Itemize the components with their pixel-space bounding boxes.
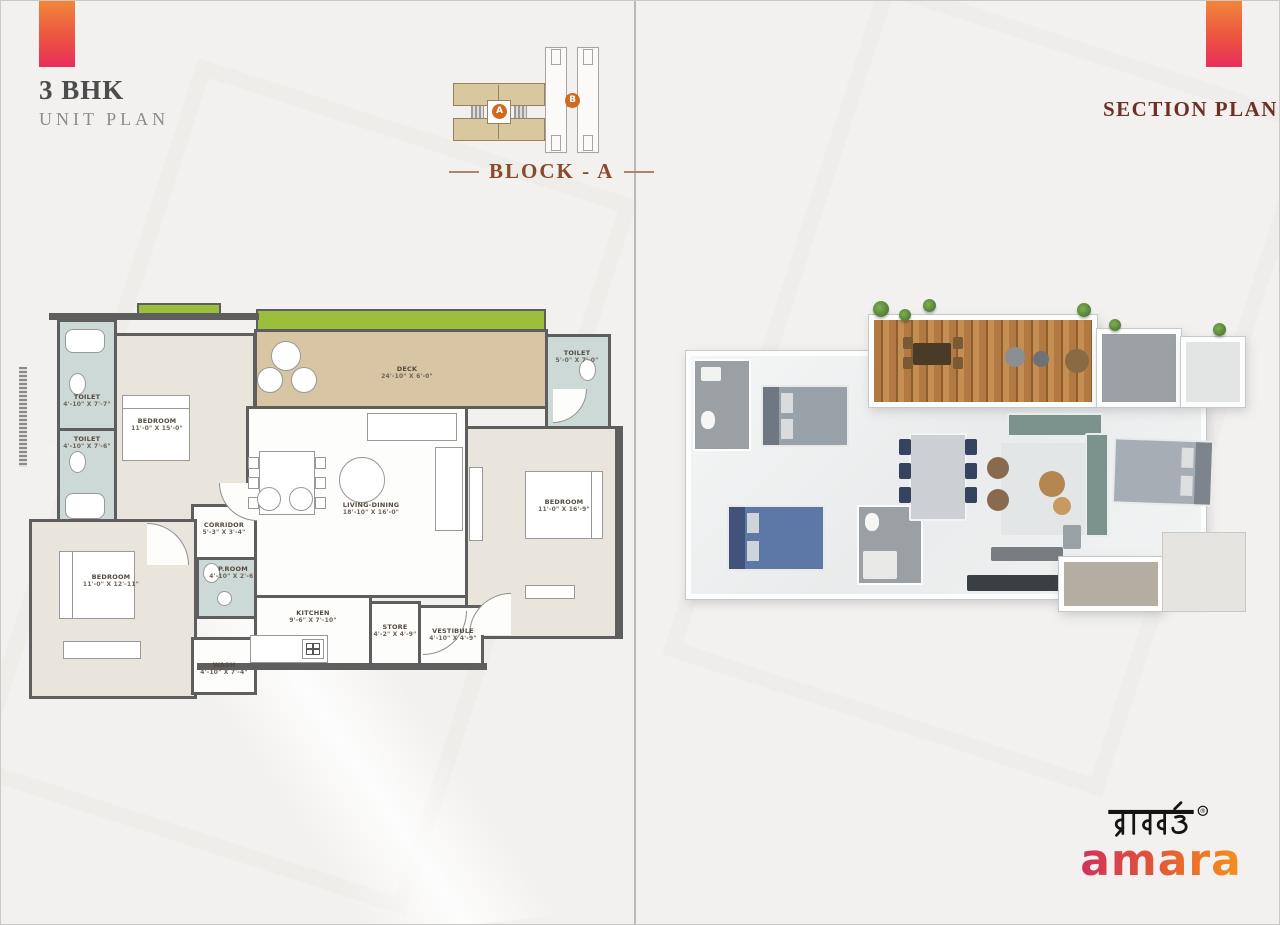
sofa xyxy=(367,413,457,441)
render-deck-chair xyxy=(953,357,963,369)
room-dim: 4'-10" X 7'-7" xyxy=(63,401,110,409)
plant-icon xyxy=(873,301,889,317)
bathtub-icon xyxy=(65,329,105,353)
room-name: DECK xyxy=(397,365,417,373)
render-wc xyxy=(865,513,879,531)
render-dining-chair xyxy=(899,439,911,455)
room-name: VESTIBULE xyxy=(432,627,474,635)
render-balcony-right xyxy=(1181,337,1245,407)
room-name: CORRIDOR xyxy=(204,521,244,529)
render-bed-blue xyxy=(727,505,825,571)
block-a-badge: A xyxy=(492,104,507,119)
lounge-chair xyxy=(339,457,385,503)
render-kitchen-island xyxy=(991,547,1063,561)
render-pillow xyxy=(781,393,793,413)
render-coffee-table xyxy=(1053,497,1071,515)
render-pillow xyxy=(1180,476,1193,496)
room-dim: 4'-2" X 4'-9" xyxy=(373,631,416,639)
render-coffee-table xyxy=(1039,471,1065,497)
room-name: P.ROOM xyxy=(218,565,248,573)
room-dim: 4'-10" X 4'-9" xyxy=(429,635,476,643)
section-plan-render xyxy=(661,293,1247,647)
room-label-toilet-1: TOILET 4'-10" X 7'-7" xyxy=(63,393,110,409)
room-label-deck: DECK 24'-10" X 6'-0" xyxy=(381,365,433,381)
accent-bar-left xyxy=(39,1,75,67)
render-headboard xyxy=(763,387,779,445)
accent-bar-right xyxy=(1206,1,1242,67)
render-headboard xyxy=(1194,442,1212,505)
room-dim: 4'-10" X 7'-4" xyxy=(200,669,247,677)
block-label-dash-right xyxy=(624,171,654,173)
room-label-kitchen: KITCHEN 9'-6" X 7'-10" xyxy=(289,609,336,625)
keyplan-block-b: B xyxy=(541,47,603,153)
room-name: BEDROOM xyxy=(138,417,177,425)
plant-icon xyxy=(899,309,911,321)
block-label: BLOCK - A xyxy=(489,159,614,184)
keyplan-block-a: A xyxy=(453,83,545,141)
block-b-badge: B xyxy=(565,93,580,108)
render-wicker-chair xyxy=(1065,349,1089,373)
plant-icon xyxy=(923,299,936,312)
bed-pillows xyxy=(122,395,190,409)
bench xyxy=(525,585,575,599)
render-deck-dining xyxy=(913,343,951,365)
brand-name: amara xyxy=(1061,839,1261,883)
block-label-row: BLOCK - A xyxy=(449,159,654,184)
panel-divider xyxy=(634,1,636,925)
wardrobe xyxy=(469,467,483,541)
room-dim: 24'-10" X 6'-0" xyxy=(381,373,433,381)
dining-chair xyxy=(315,497,326,509)
render-dining-table xyxy=(909,433,967,521)
render-pillow xyxy=(1181,448,1194,468)
hob-icon xyxy=(302,639,324,659)
dining-chair xyxy=(248,457,259,469)
unit-plan-subtitle: UNIT PLAN xyxy=(39,109,169,130)
kitchen-sink xyxy=(257,487,281,511)
devanagari-strokes xyxy=(1116,803,1186,836)
room-name: LIVING-DINING xyxy=(343,501,400,509)
basin-icon xyxy=(217,591,232,606)
room-label-living: LIVING-DINING 18'-10" X 16'-0" xyxy=(343,501,400,517)
room-name: BEDROOM xyxy=(92,573,131,581)
keyplan-a-core-hatch-left xyxy=(471,106,484,118)
room-name: WASH xyxy=(213,661,236,669)
sofa-single xyxy=(435,447,463,531)
room-dim: 11'-0" X 12'-11" xyxy=(83,581,139,589)
room-label-toilet-2: TOILET 4'-10" X 7'-6" xyxy=(63,435,110,451)
room-dim: 11'-0" X 15'-0" xyxy=(131,425,183,433)
render-pillow xyxy=(781,419,793,439)
render-fridge xyxy=(1063,525,1081,549)
block-label-dash-left xyxy=(449,171,479,173)
render-toilet-topright xyxy=(1097,329,1181,407)
render-bed-right xyxy=(1112,437,1214,506)
room-label-bedroom-1: BEDROOM 11'-0" X 15'-0" xyxy=(131,417,183,433)
wall-right xyxy=(615,426,623,639)
render-dining-chair xyxy=(899,463,911,479)
keyplan-b-room3 xyxy=(551,135,561,151)
room-dim: 4'-10" X 2'-6" xyxy=(209,573,256,581)
dining-chair xyxy=(248,477,259,489)
wall-top xyxy=(49,313,259,320)
render-dining-chair xyxy=(965,487,977,503)
render-pillow xyxy=(747,513,759,533)
room-label-bedroom-3: BEDROOM 11'-0" X 12'-11" xyxy=(83,573,139,589)
room-dim: 5'-3" X 3'-4" xyxy=(202,529,245,537)
render-sofa-side xyxy=(1085,433,1109,537)
bed-pillows xyxy=(591,471,603,539)
keyplan-a-core-hatch-right xyxy=(514,106,527,118)
wall-grille xyxy=(19,367,27,467)
dining-chair xyxy=(315,477,326,489)
toilet-wc-icon xyxy=(69,451,86,473)
room-dim: 18'-10" X 16'-0" xyxy=(343,509,400,517)
plant-icon xyxy=(1109,319,1121,331)
room-name: TOILET xyxy=(74,393,101,401)
render-dining-chair xyxy=(965,439,977,455)
toilet-wc-icon xyxy=(69,373,86,395)
room-dim: 5'-0" X 7'-0" xyxy=(555,357,598,365)
brand-devanagari: ® xyxy=(1095,799,1227,839)
plant-icon xyxy=(1213,323,1226,336)
bed-pillows xyxy=(59,551,73,619)
render-deck-chair xyxy=(903,337,913,349)
brochure-page: 3 BHK UNIT PLAN SECTION PLAN A B BLOCK -… xyxy=(0,0,1280,925)
room-dim: 4'-10" X 7'-6" xyxy=(63,443,110,451)
render-deck-lounge xyxy=(1005,347,1025,367)
deck-table xyxy=(271,341,301,371)
room-name: KITCHEN xyxy=(296,609,329,617)
render-headboard xyxy=(729,507,745,569)
dining-chair xyxy=(315,457,326,469)
render-accent-chair xyxy=(987,489,1009,511)
keyplan-b-room4 xyxy=(583,135,593,151)
keyplan-b-room2 xyxy=(583,49,593,65)
render-deck-chair xyxy=(953,337,963,349)
room-label-toilet-3: TOILET 5'-0" X 7'-0" xyxy=(555,349,598,365)
room-name: TOILET xyxy=(74,435,101,443)
room-label-powder-room: P.ROOM 4'-10" X 2'-6" xyxy=(209,565,256,581)
keyplan-b-room xyxy=(551,49,561,65)
room-name: STORE xyxy=(382,623,407,631)
room-dim: 9'-6" X 7'-10" xyxy=(289,617,336,625)
render-pillow xyxy=(747,541,759,561)
room-name: TOILET xyxy=(564,349,591,357)
render-deck-lounge xyxy=(1033,351,1049,367)
room-label-store: STORE 4'-2" X 4'-9" xyxy=(373,623,416,639)
registered-mark: ® xyxy=(1200,807,1206,815)
unit-plan-title: 3 BHK xyxy=(39,75,124,106)
section-plan-title: SECTION PLAN xyxy=(1103,97,1278,122)
render-shower xyxy=(863,551,897,579)
bench xyxy=(63,641,141,659)
room-label-vestibule: VESTIBULE 4'-10" X 4'-9" xyxy=(429,627,476,643)
brand-logo: ® amara xyxy=(1061,799,1261,883)
unit-floorplan: TOILET 4'-10" X 7'-7" TOILET 4'-10" X 7'… xyxy=(19,301,633,703)
render-dining-chair xyxy=(899,487,911,503)
room-label-bedroom-2: BEDROOM 11'-0" X 16'-9" xyxy=(538,498,590,514)
render-dining-chair xyxy=(965,463,977,479)
render-balcony-bottom xyxy=(1163,533,1245,611)
room-dim: 11'-0" X 16'-9" xyxy=(538,506,590,514)
render-bed-gray xyxy=(761,385,849,447)
render-patio xyxy=(1059,557,1163,611)
planter-deck xyxy=(256,309,546,331)
room-name: BEDROOM xyxy=(545,498,584,506)
render-basin xyxy=(701,367,721,381)
kitchen-sink xyxy=(289,487,313,511)
render-deck-chair xyxy=(903,357,913,369)
bathtub-icon xyxy=(65,493,105,519)
room-label-wash: WASH 4'-10" X 7'-4" xyxy=(200,661,247,677)
hob-burner xyxy=(312,648,320,655)
render-accent-chair xyxy=(987,457,1009,479)
deck-table xyxy=(291,367,317,393)
deck-table xyxy=(257,367,283,393)
shirorekha-bar xyxy=(1108,810,1193,814)
render-wc xyxy=(701,411,715,429)
room-label-corridor: CORRIDOR 5'-3" X 3'-4" xyxy=(202,521,245,537)
plant-icon xyxy=(1077,303,1091,317)
